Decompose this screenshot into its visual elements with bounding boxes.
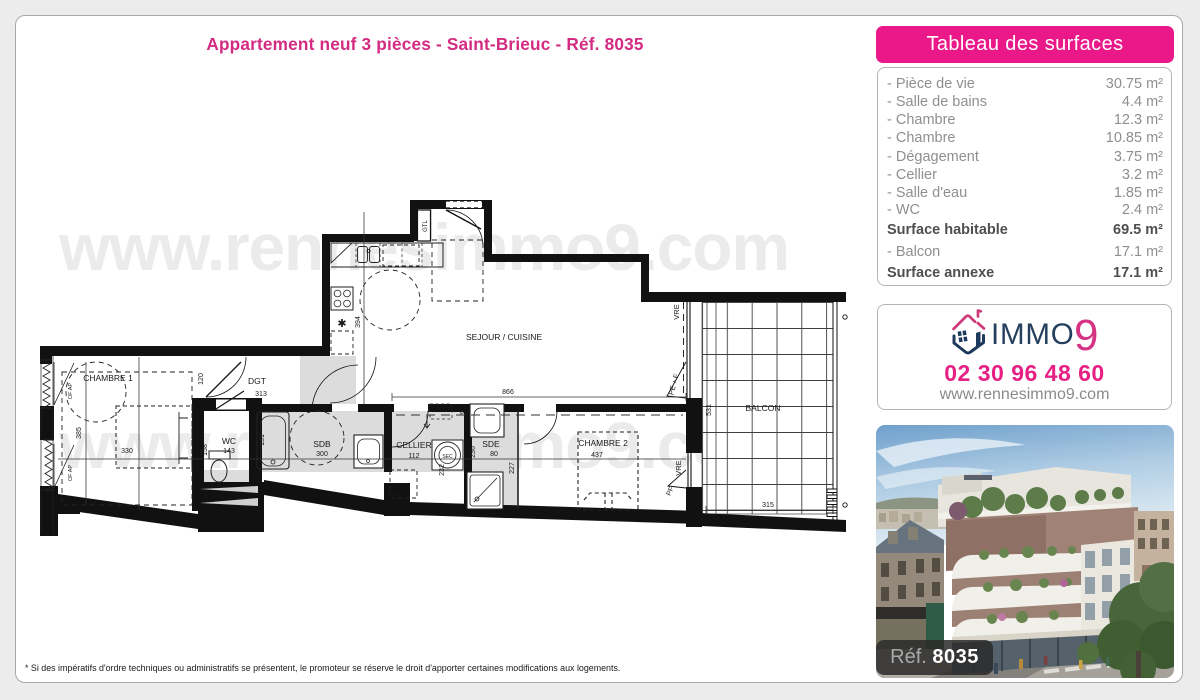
svg-text:PL: PL [460, 410, 468, 417]
svg-text:158: 158 [202, 444, 209, 456]
svg-text:232: 232 [439, 464, 446, 476]
svg-text:112: 112 [408, 453, 419, 460]
svg-text:SDE: SDE [482, 439, 500, 449]
svg-text:PF: PF [666, 486, 676, 497]
svg-text:BALCON: BALCON [746, 403, 781, 413]
svg-text:120: 120 [198, 373, 205, 385]
svg-text:385: 385 [76, 427, 83, 439]
svg-text:CHAMBRE 1: CHAMBRE 1 [83, 373, 133, 383]
svg-text:OF AP: OF AP [68, 465, 74, 482]
svg-text:OF AP: OF AP [68, 383, 74, 400]
svg-text:IMMO: IMMO [991, 318, 1075, 351]
svg-text:SEC: SEC [442, 454, 453, 460]
svg-text:313: 313 [255, 391, 267, 398]
svg-text:866: 866 [502, 389, 514, 396]
svg-text:SEJOUR / CUISINE: SEJOUR / CUISINE [466, 332, 542, 342]
svg-text:143: 143 [223, 448, 235, 455]
svg-text:VRE: VRE [674, 460, 683, 475]
svg-text:UL/SL: UL/SL [393, 493, 404, 497]
svg-text:437: 437 [591, 452, 603, 459]
svg-text:227: 227 [509, 462, 516, 474]
svg-text:SDB: SDB [313, 439, 331, 449]
svg-text:CELLIER: CELLIER [396, 440, 431, 450]
svg-text:531: 531 [706, 404, 713, 416]
svg-text:GTL: GTL [423, 220, 429, 232]
svg-text:✱: ✱ [337, 318, 346, 330]
svg-text:330: 330 [121, 448, 133, 455]
svg-text:CHAMBRE 2: CHAMBRE 2 [578, 438, 628, 448]
svg-text:151: 151 [259, 434, 266, 446]
svg-text:315: 315 [762, 502, 774, 509]
svg-text:VRE: VRE [672, 304, 681, 319]
svg-text:80: 80 [490, 451, 498, 458]
svg-text:394: 394 [355, 316, 362, 328]
svg-text:PE + F: PE + F [668, 373, 680, 396]
svg-text:300: 300 [316, 451, 328, 458]
svg-text:DGT: DGT [248, 376, 266, 386]
svg-text:WC: WC [222, 436, 236, 446]
svg-text:236: 236 [470, 446, 477, 458]
svg-text:9: 9 [1074, 311, 1098, 359]
